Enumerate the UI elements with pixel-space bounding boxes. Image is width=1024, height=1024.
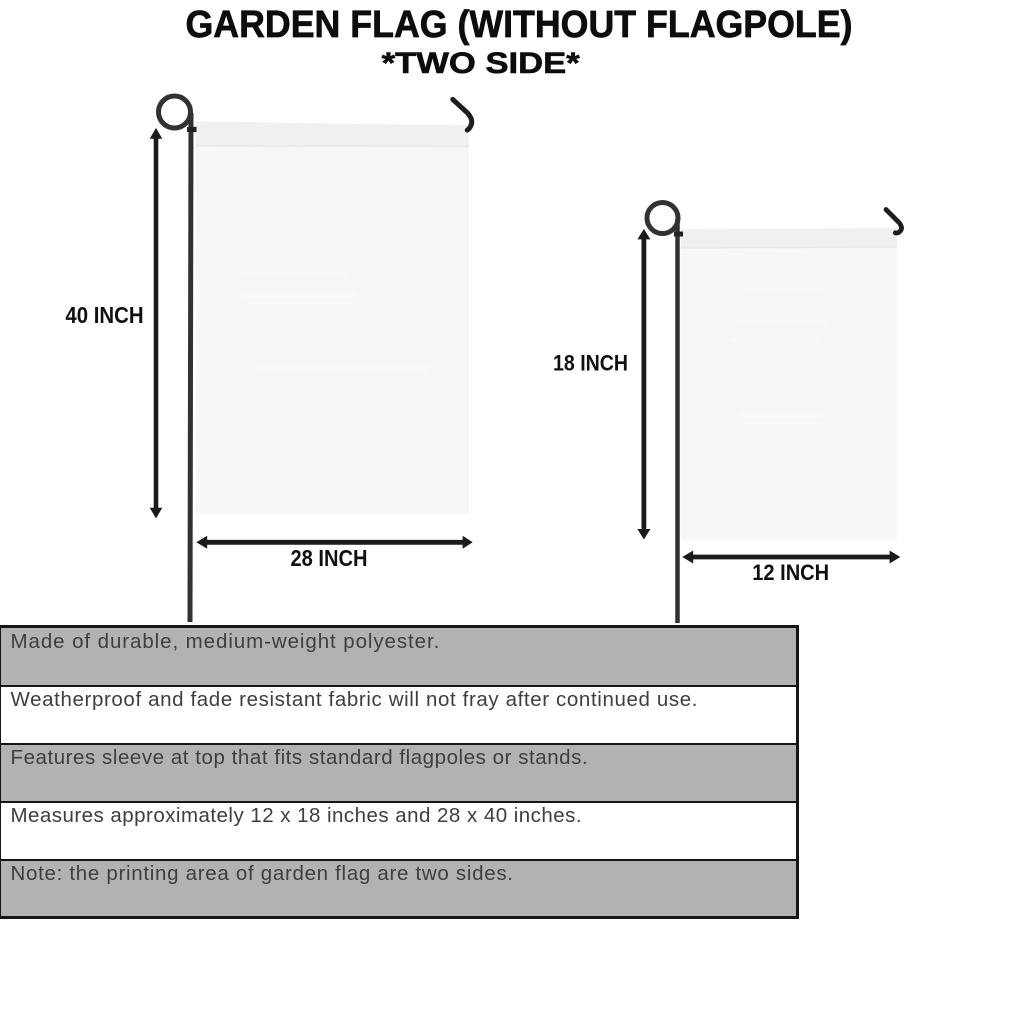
- svg-text:28 INCH: 28 INCH: [291, 545, 368, 571]
- svg-text:GARDEN FLAG (WITHOUT FLAGPOLE): GARDEN FLAG (WITHOUT FLAGPOLE): [186, 4, 853, 46]
- svg-text:*TWO SIDE*: *TWO SIDE*: [382, 47, 581, 80]
- svg-text:12 INCH: 12 INCH: [752, 560, 829, 585]
- svg-text:18 INCH: 18 INCH: [553, 351, 628, 376]
- svg-text:40 INCH: 40 INCH: [65, 302, 143, 328]
